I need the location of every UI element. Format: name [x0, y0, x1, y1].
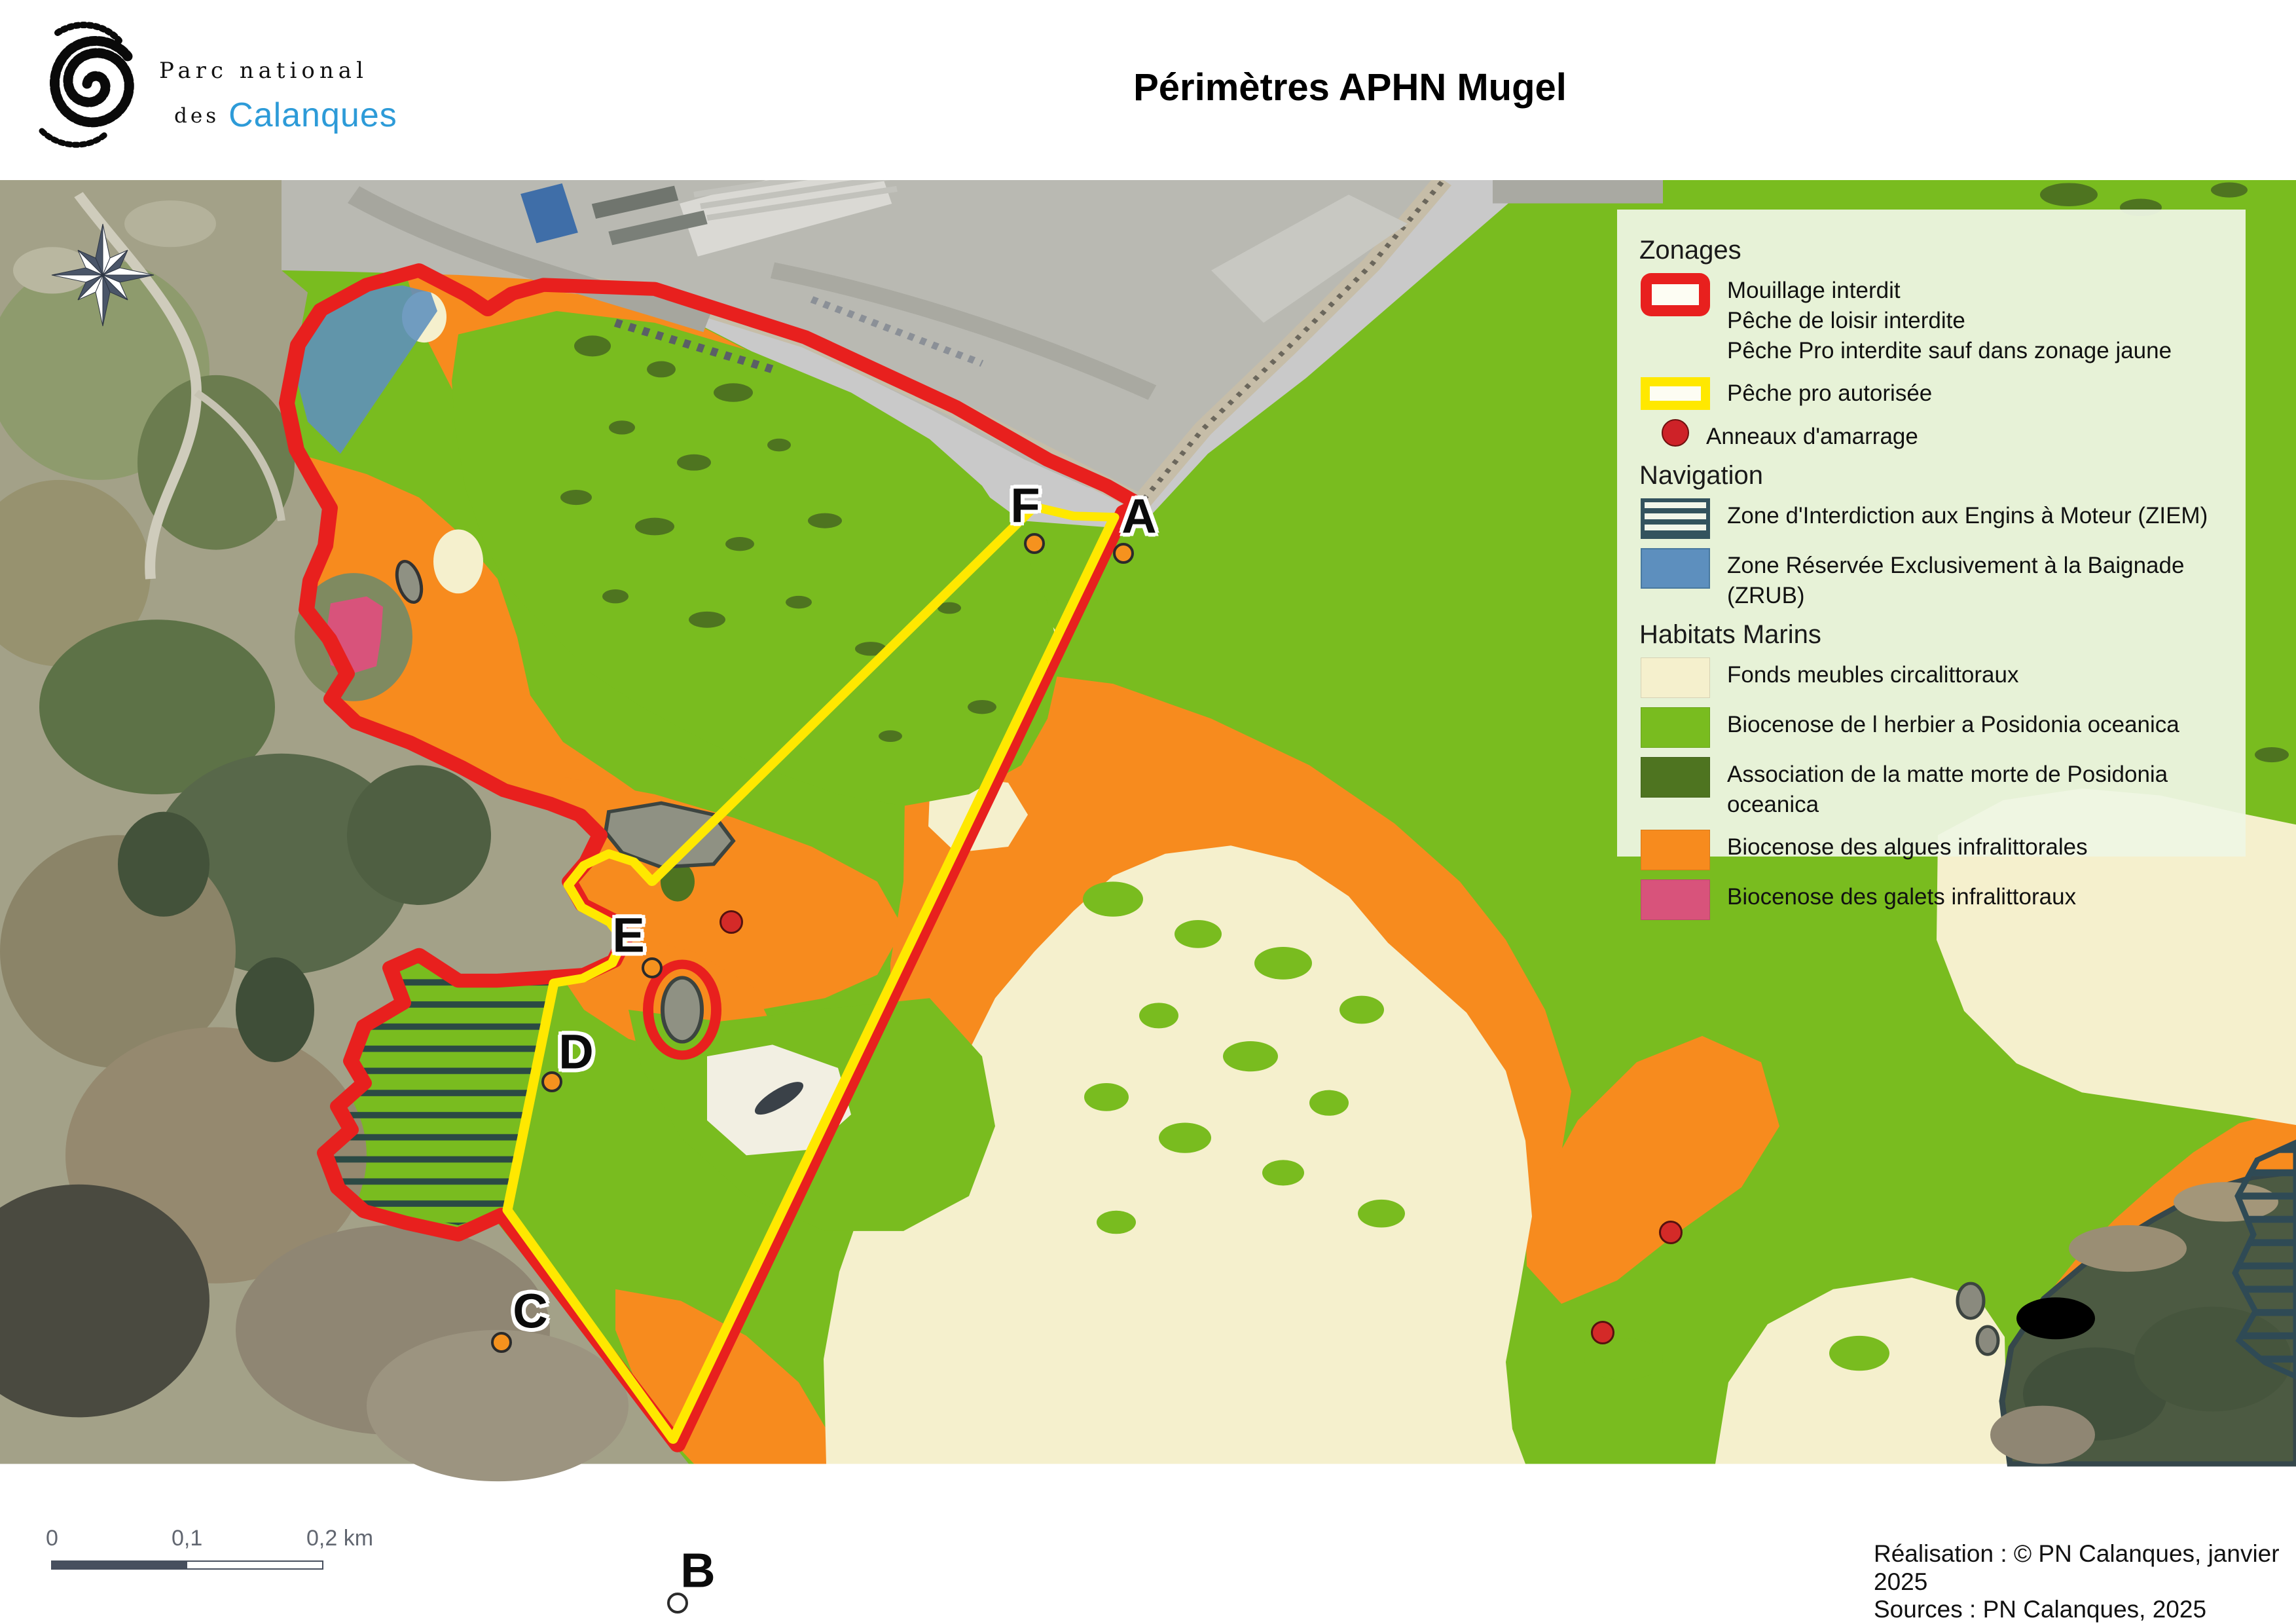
legend-item: Fonds meubles circalittoraux: [1641, 657, 2223, 698]
legend-label: Mouillage interditPêche de loisir interd…: [1727, 273, 2172, 367]
legend-swatch-blue-fill: [1641, 548, 1710, 589]
legend-label: Zone d'Interdiction aux Engins à Moteur …: [1727, 498, 2208, 531]
parc-national-calanques-logo: Parc national desCalanques: [18, 7, 424, 170]
legend-swatch-hatch: [1641, 498, 1710, 539]
legend-label: Biocenose des algues infralittorales: [1727, 830, 2088, 862]
page-title: Périmètres APHN Mugel: [1133, 65, 1567, 109]
header: Parc national desCalanques Périmètres AP…: [0, 0, 2296, 180]
legend-label: Anneaux d'amarrage: [1706, 419, 1918, 452]
legend-section-title: Zonages: [1639, 236, 2223, 265]
legend-item: Biocenose de l herbier a Posidonia ocean…: [1641, 707, 2223, 748]
legend-item: Biocenose des galets infralittoraux: [1641, 879, 2223, 920]
credits-sources: Sources : PN Calanques, 2025: [1874, 1596, 2296, 1624]
scale-label-end: 0,2 km: [306, 1526, 373, 1551]
legend-item: Zone d'Interdiction aux Engins à Moteur …: [1641, 498, 2223, 539]
compass-rose-icon: [47, 219, 158, 331]
legend-swatch-fill: [1641, 879, 1710, 920]
legend-section-title: Habitats Marins: [1639, 620, 2223, 650]
legend-swatch-fill: [1641, 707, 1710, 748]
legend-item: Biocenose des algues infralittorales: [1641, 830, 2223, 870]
legend-swatch-fill: [1641, 830, 1710, 870]
logo-text-des: des: [174, 104, 219, 128]
legend-label: Biocenose de l herbier a Posidonia ocean…: [1727, 707, 2179, 740]
logo-spiral-icon: [18, 7, 156, 160]
credits-realisation: Réalisation : © PN Calanques, janvier 20…: [1874, 1540, 2296, 1596]
legend-label: Pêche pro autorisée: [1727, 376, 1932, 409]
scale-bar-dark-half: [52, 1562, 187, 1568]
legend-item: Mouillage interditPêche de loisir interd…: [1641, 273, 2223, 367]
legend-swatch-red-dot: [1662, 419, 1689, 447]
legend-item: Pêche pro autorisée: [1641, 376, 2223, 410]
legend-item: Zone Réservée Exclusivement à la Baignad…: [1641, 548, 2223, 611]
legend-label: Zone Réservée Exclusivement à la Baignad…: [1727, 548, 2223, 611]
legend-label: Association de la matte morte de Posidon…: [1727, 757, 2223, 820]
scale-label-mid: 0,1: [172, 1526, 202, 1551]
legend-swatch-fill: [1641, 757, 1710, 798]
legend-item: Association de la matte morte de Posidon…: [1641, 757, 2223, 820]
legend-item: Anneaux d'amarrage: [1641, 419, 2223, 452]
legend-label: Fonds meubles circalittoraux: [1727, 657, 2018, 690]
legend-section-title: Navigation: [1639, 461, 2223, 490]
logo-text-line1: Parc national: [159, 58, 368, 84]
logo-text-calanques: Calanques: [228, 96, 397, 134]
legend-label: Biocenose des galets infralittoraux: [1727, 879, 2076, 912]
map-credits: Réalisation : © PN Calanques, janvier 20…: [1874, 1540, 2296, 1624]
legend-panel: ZonagesMouillage interditPêche de loisir…: [1617, 210, 2246, 857]
scale-bar: [51, 1560, 323, 1570]
scale-label-0: 0: [46, 1526, 58, 1551]
legend-swatch-red-ring: [1641, 273, 1710, 316]
legend-swatch-yellow-ring: [1641, 377, 1710, 410]
logo-text-line2: desCalanques: [174, 92, 397, 131]
legend-swatch-fill: [1641, 657, 1710, 698]
